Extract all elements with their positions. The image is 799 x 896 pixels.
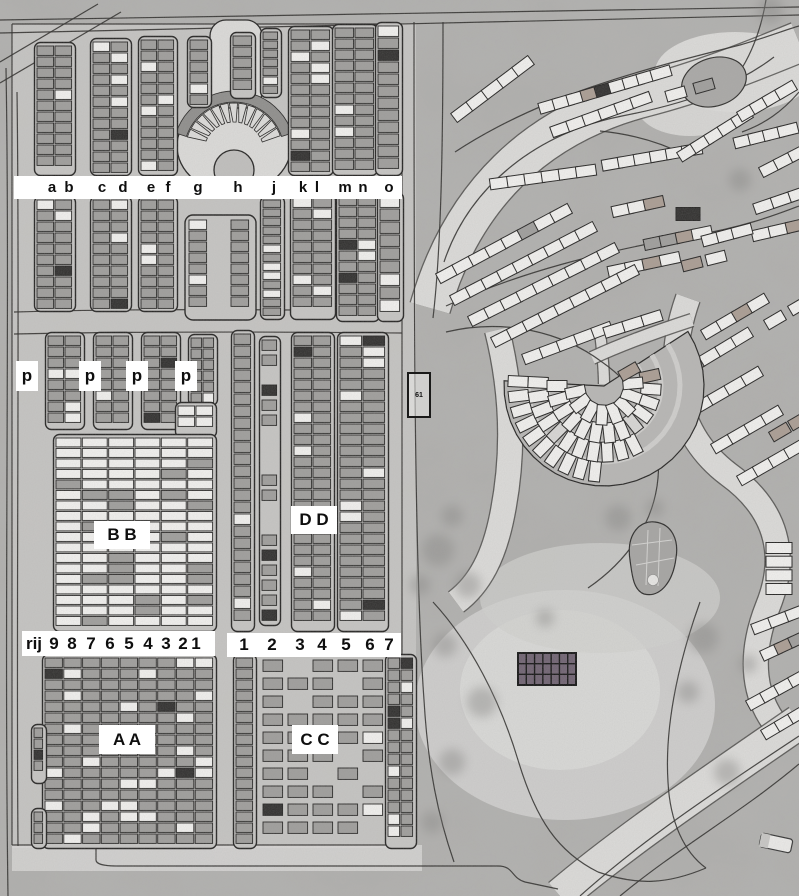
- dark-grid-building: [518, 653, 576, 685]
- map-canvas: [0, 0, 799, 896]
- aerial-plot-map: abcdefghjklmno rij987654321 1234567 B B …: [0, 0, 799, 896]
